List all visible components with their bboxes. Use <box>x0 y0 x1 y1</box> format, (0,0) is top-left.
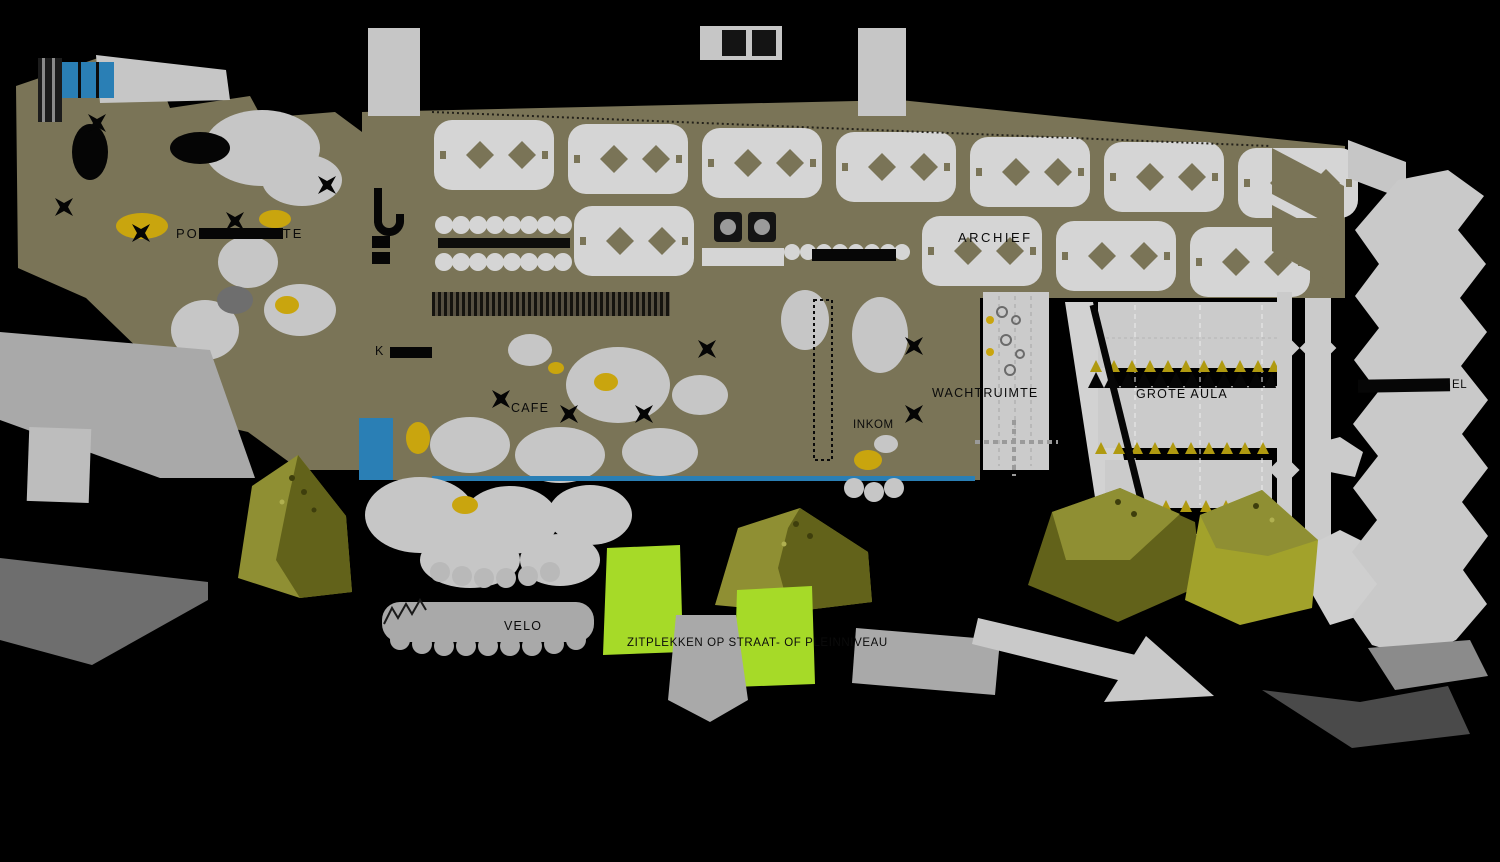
reading-tables <box>435 216 572 271</box>
label-archief: ARCHIEF <box>958 231 1033 244</box>
plan-drawing <box>0 0 1500 862</box>
label-inkom: INKOM <box>853 420 894 432</box>
label-left-room-suffix: TE <box>283 226 304 241</box>
label-left-room-prefix: PO <box>176 226 199 241</box>
plaza-arrow <box>972 618 1214 702</box>
hatched-strip <box>432 292 670 316</box>
label-wachtruimte: WACHTRUIMTE <box>932 387 1038 400</box>
blue-room <box>359 418 393 480</box>
label-velo: VELO <box>504 620 542 633</box>
waiting-room <box>975 292 1058 476</box>
label-grote-aula: GROTE AULA <box>1136 388 1228 401</box>
redaction-bar <box>199 228 283 239</box>
keuken-redaction-bar <box>390 347 432 358</box>
label-keuken-initial: K <box>375 345 385 358</box>
label-tower-fragment: EL <box>1452 380 1467 392</box>
label-zitplekken: ZITPLEKKEN OP STRAAT- OF PLEINNIVEAU <box>627 638 888 650</box>
site-plan: POTE ARCHIEF WACHTRUIMTE GROTE AULA EL I… <box>0 0 1500 862</box>
terrace-blobs <box>365 477 632 588</box>
obscured-label-bar <box>812 249 896 261</box>
label-cafe: CAFE <box>511 402 549 415</box>
label-left-room: POTE <box>176 227 303 240</box>
tree-mound-right <box>1028 488 1318 625</box>
right-tower <box>1352 170 1488 690</box>
glazing-blue <box>62 62 114 98</box>
tree-mound-left <box>238 455 352 598</box>
velo-strip <box>382 600 594 656</box>
tower-label-bar <box>1358 378 1450 393</box>
